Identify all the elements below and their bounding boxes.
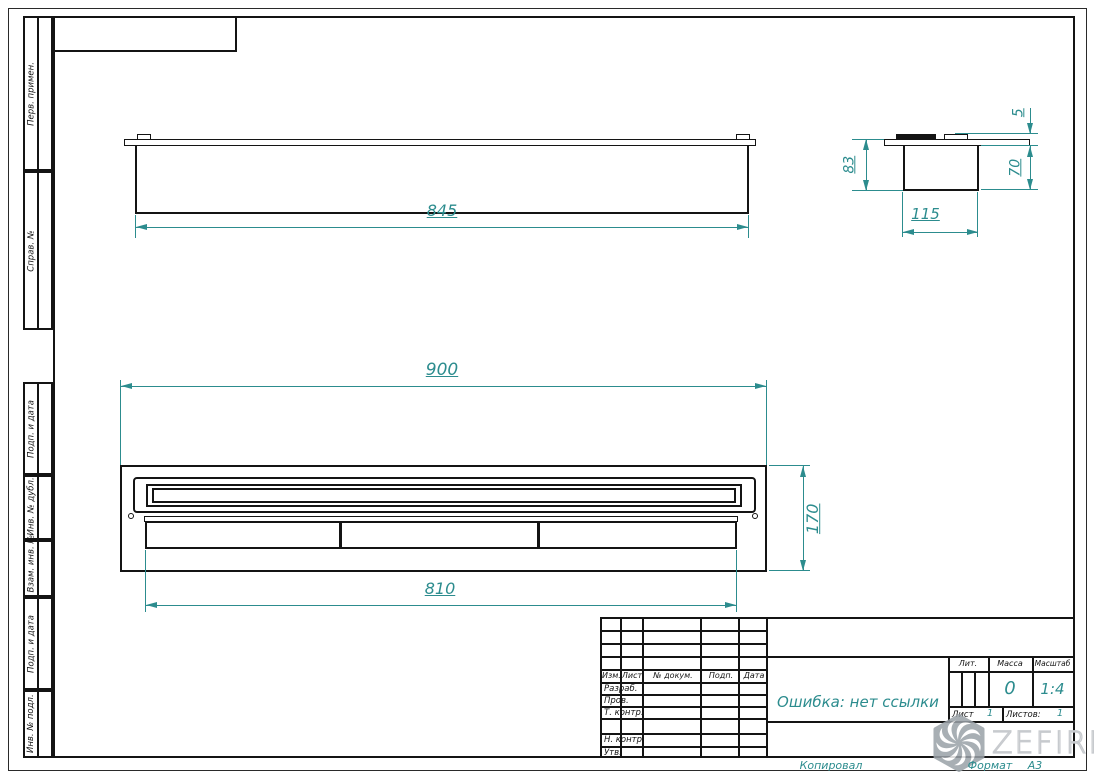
side-body [903, 144, 979, 191]
margin-label: Подп. и дата [25, 387, 37, 470]
dim-text-170: 170 [804, 489, 822, 549]
tab-right [736, 134, 750, 140]
burner-lid [145, 521, 737, 549]
dim-text-70: 70 [1008, 148, 1023, 188]
dim-text-810: 810 [375, 580, 505, 598]
dim-text-115: 115 [863, 206, 988, 223]
slot-opening [152, 488, 736, 503]
format-label: Формат [958, 759, 1022, 772]
divider [37, 692, 39, 756]
sheets-value: 1 [1048, 706, 1072, 721]
margin-label: Инв. № подл. [25, 695, 37, 753]
format-value: А3 [1018, 759, 1052, 772]
mass-label: Масса [988, 657, 1032, 670]
dim-text-5: 5 [1011, 93, 1026, 133]
lid-divider-1 [339, 523, 342, 547]
dim-text-900: 900 [377, 361, 507, 380]
scale-label: Масштаб [1032, 657, 1073, 670]
screw-hole-left [128, 513, 134, 519]
col-data: Дата [740, 669, 768, 682]
side-tab-filled [896, 134, 936, 140]
margin-label: Подп. и дата [25, 602, 37, 685]
col-dokum: № докум. [644, 669, 702, 682]
tab-left [137, 134, 151, 140]
row-nkontr: Н. контр. [604, 734, 645, 746]
margin-label: Взам. инв. № [25, 545, 37, 592]
copied-label: Копировал [771, 759, 891, 772]
side-tab-outline [944, 134, 968, 140]
top-stamp-box [53, 16, 237, 52]
margin-box-vzam-inv: Взам. инв. № [23, 540, 53, 597]
margin-box-inv-podl: Инв. № подл. [23, 690, 53, 758]
lid-divider-2 [537, 523, 540, 547]
dim-text-83: 83 [842, 145, 857, 185]
mass-value: 0 [988, 671, 1032, 706]
margin-label: Инв. № дубл. [25, 480, 37, 535]
margin-label: Справ. № [25, 176, 37, 325]
mounting-plate [124, 139, 756, 146]
margin-box-podp-data-2: Подп. и дата [23, 597, 53, 690]
col-list: Лист [620, 669, 644, 682]
doc-name: Ошибка: нет ссылки [768, 658, 948, 721]
row-utv: Утв. [604, 747, 622, 759]
sheets-label: Листов: [1006, 708, 1041, 723]
scale-value: 1:4 [1032, 671, 1073, 706]
col-podp: Подп. [702, 669, 740, 682]
dim-text-845: 845 [377, 202, 507, 220]
margin-box-podp-data-1: Подп. и дата [23, 382, 53, 475]
margin-box-sprav-no: Справ. № [23, 171, 53, 330]
margin-label: Перв. примен. [25, 21, 37, 166]
margin-box-perv-primen: Перв. примен. [23, 16, 53, 171]
margin-box-inv-dubl: Инв. № дубл. [23, 475, 53, 540]
row-prov: Пров. [604, 695, 629, 707]
lit-label: Лит. [948, 657, 988, 670]
row-tkontr: Т. контр. [604, 707, 644, 719]
row-razrab: Разраб. [604, 683, 637, 695]
col-izm: Изм. [602, 669, 620, 682]
zefire-watermark-text: ZEFIRE [992, 726, 1094, 761]
screw-hole-right [752, 513, 758, 519]
drawing-sheet: Перв. примен. Справ. № Подп. и дата Инв.… [0, 0, 1094, 779]
